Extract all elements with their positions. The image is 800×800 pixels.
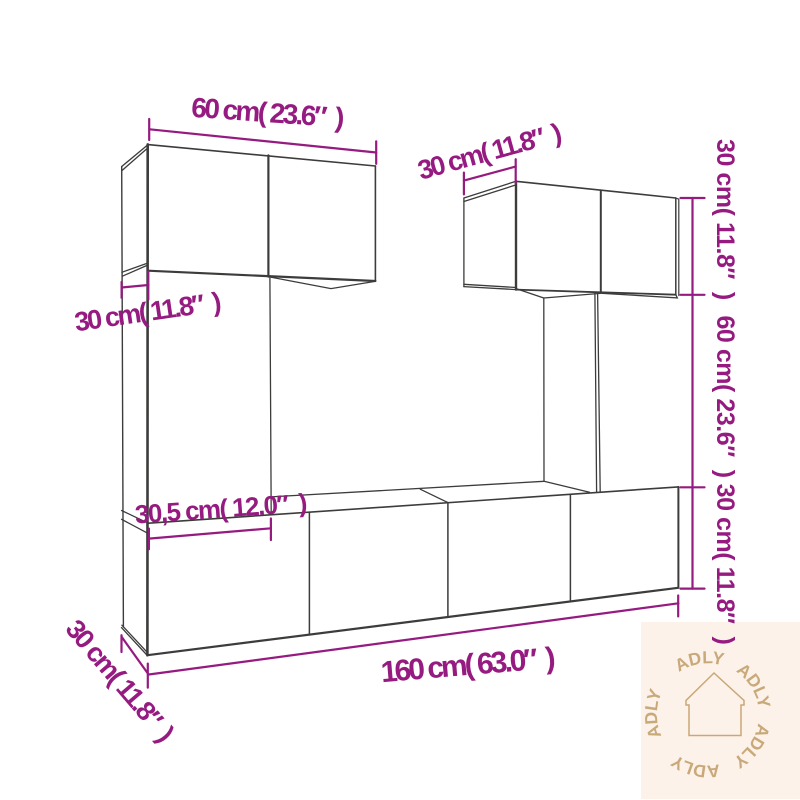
svg-text:30 cm( 11.8″ ): 30 cm( 11.8″ ) <box>711 484 739 645</box>
svg-text:30 cm( 11.8″ ): 30 cm( 11.8″ ) <box>711 139 739 300</box>
svg-text:60 cm( 23.6″ ): 60 cm( 23.6″ ) <box>711 315 739 477</box>
